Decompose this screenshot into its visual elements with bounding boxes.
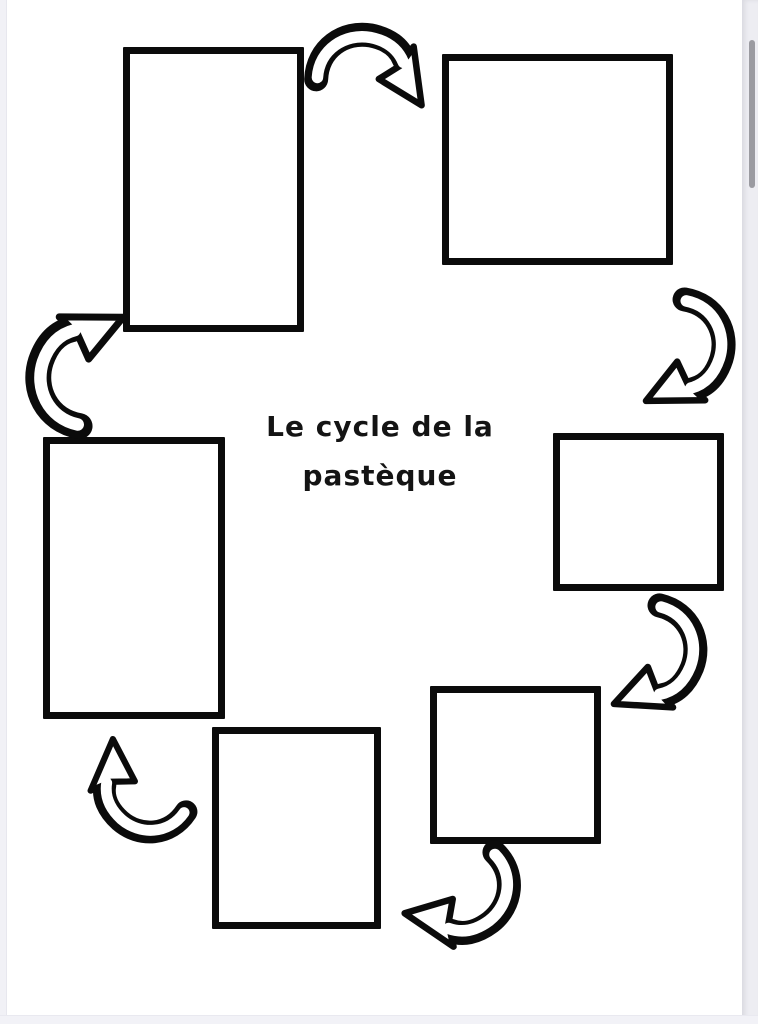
cycle-box-bottom-right: [430, 686, 601, 844]
cycle-arrow-right-upper-icon: [612, 281, 758, 431]
cycle-arrow-top-icon: [297, 0, 447, 145]
viewer-bottom-edge-strip: [0, 1015, 758, 1024]
cycle-box-bottom: [212, 727, 381, 929]
worksheet-page: Le cycle de la pastèque: [0, 0, 758, 1024]
viewer-screen: Le cycle de la pastèque: [0, 0, 758, 1024]
worksheet-title-line-2: pastèque: [245, 451, 515, 500]
scrollbar-thumb[interactable]: [749, 40, 755, 188]
cycle-box-right: [553, 433, 724, 591]
cycle-arrow-bottom-icon: [389, 825, 539, 975]
cycle-box-left: [43, 437, 225, 719]
cycle-arrow-top-left-icon: [3, 290, 153, 440]
cycle-arrow-bottom-left-icon: [61, 717, 211, 867]
cycle-box-top-right: [442, 54, 673, 265]
viewer-left-edge-strip: [0, 0, 7, 1024]
cycle-arrow-right-lower-icon: [583, 587, 733, 737]
worksheet-title: Le cycle de la pastèque: [245, 402, 515, 500]
worksheet-title-line-1: Le cycle de la: [245, 402, 515, 451]
